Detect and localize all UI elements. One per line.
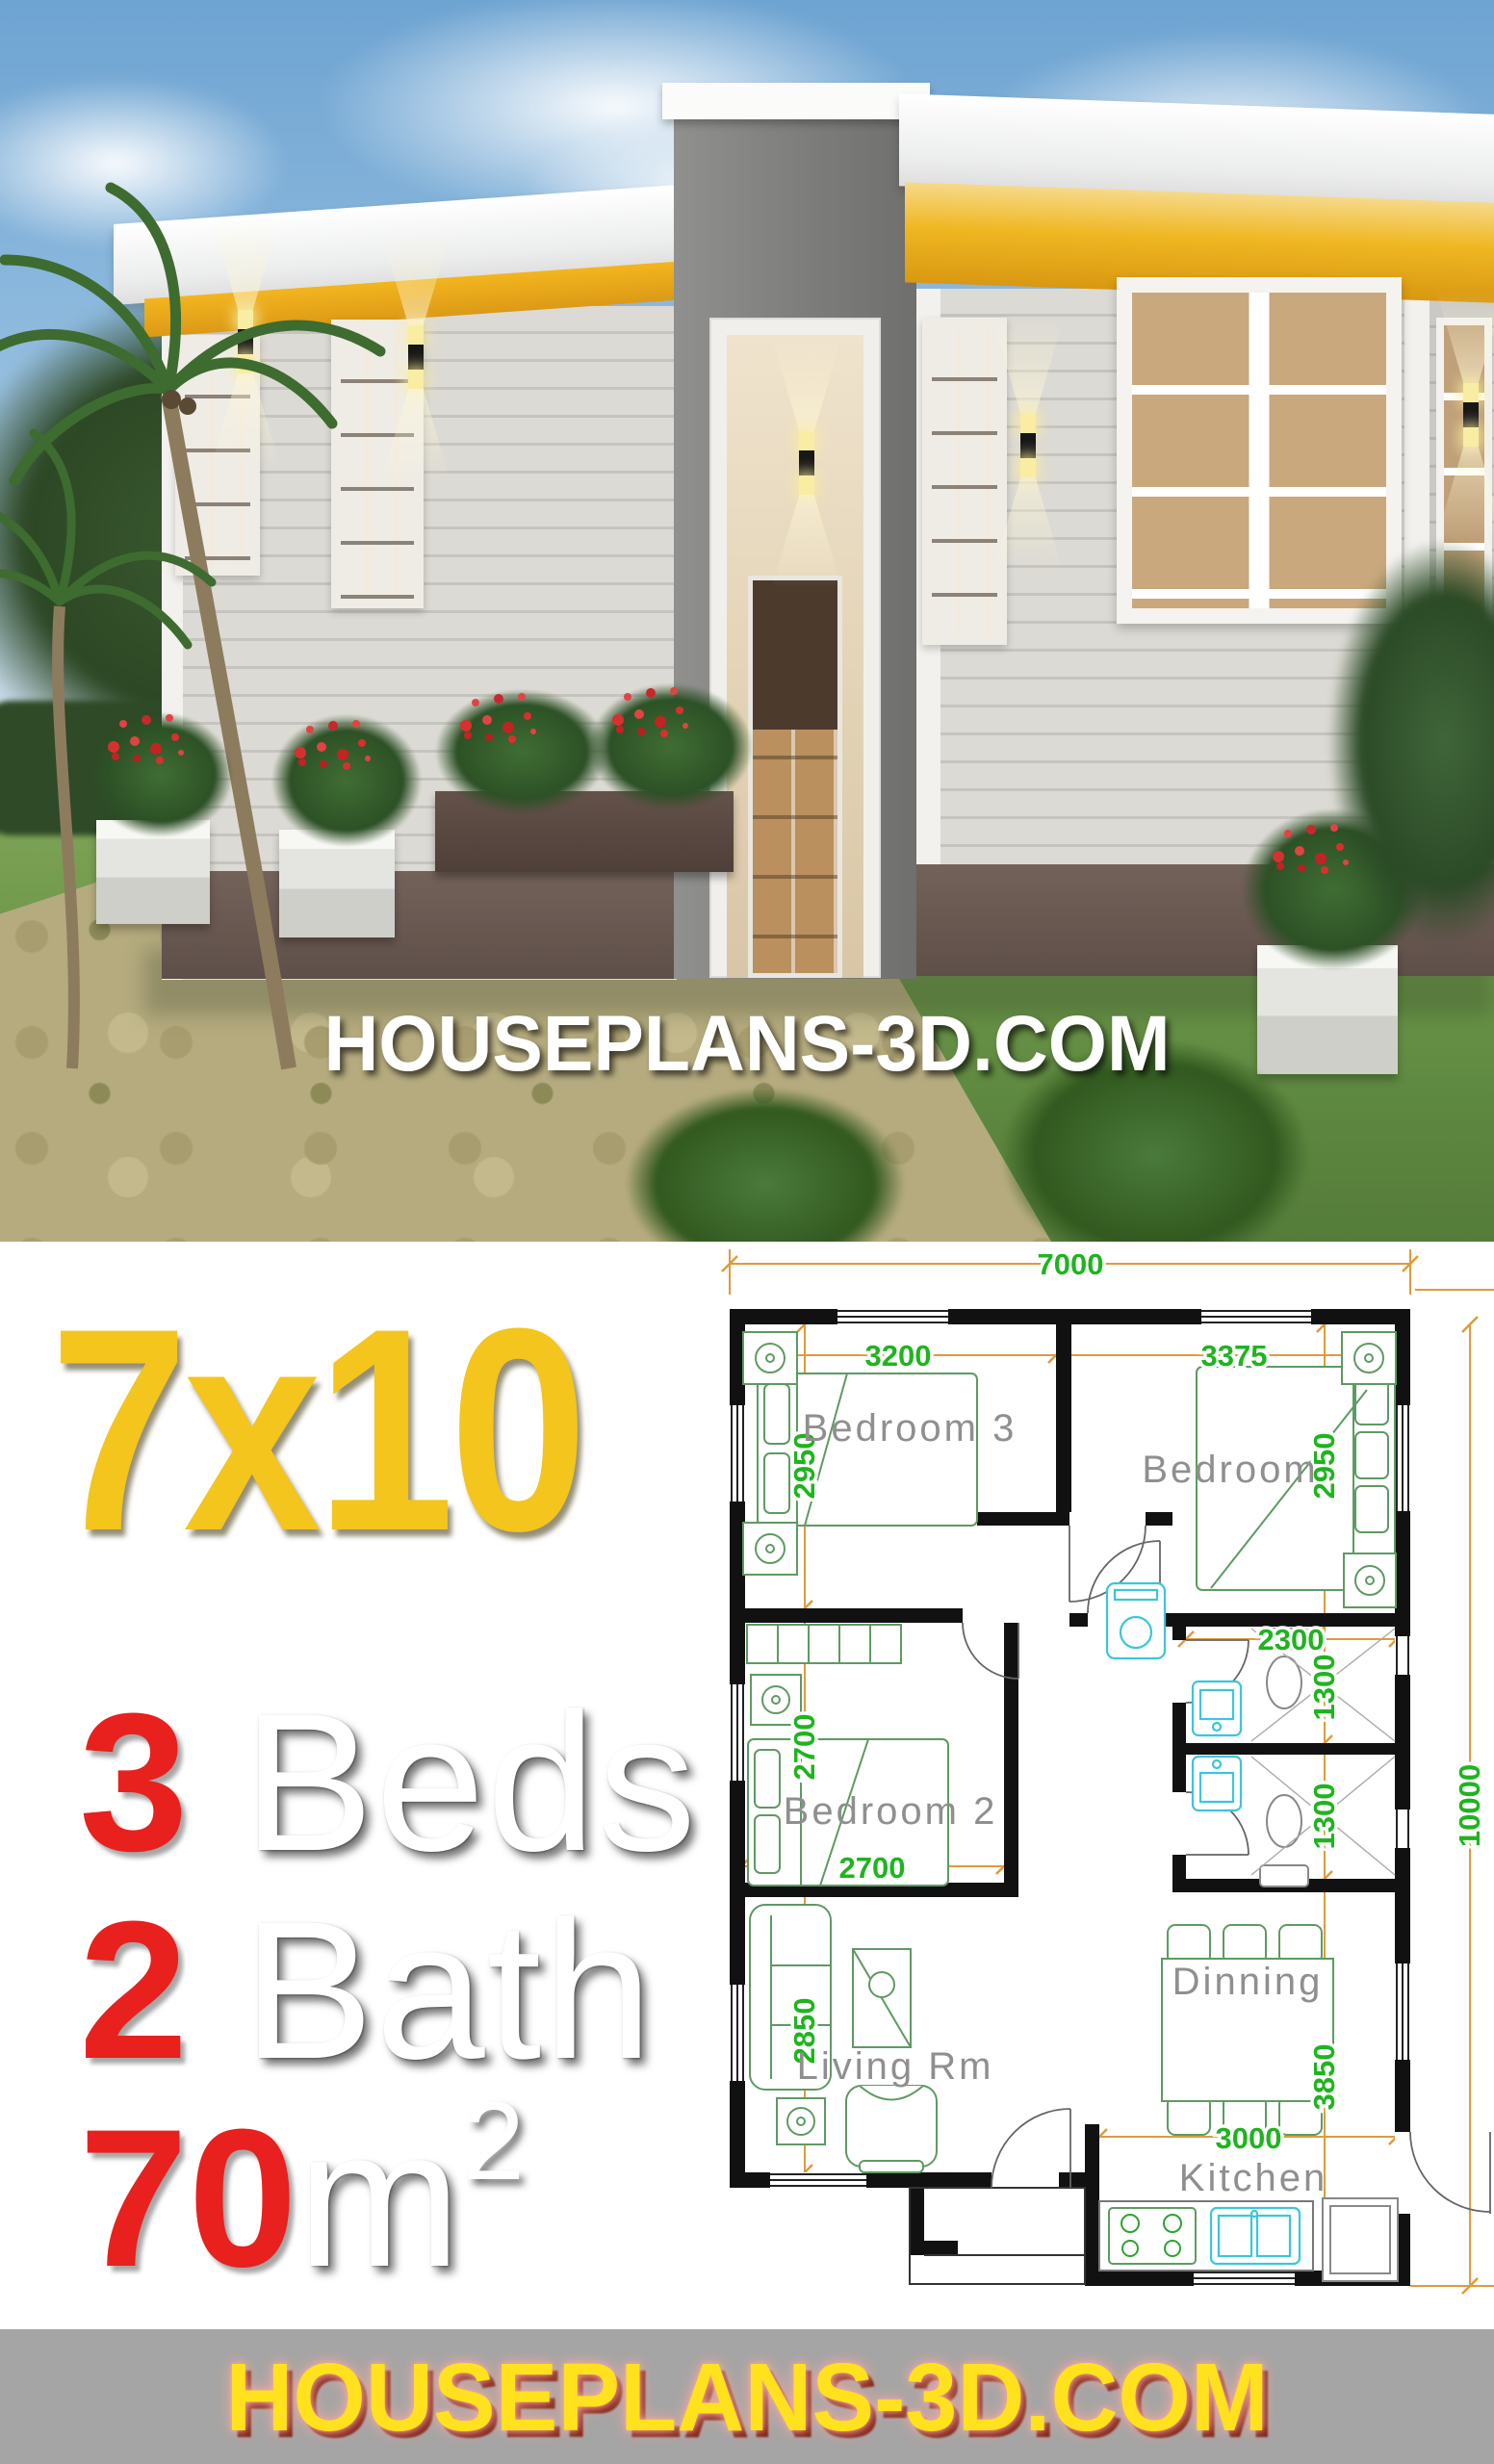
beds-count: 3 — [79, 1673, 188, 1892]
plot-size-title: 7x10 — [50, 1263, 582, 1596]
entry-step — [910, 2188, 1085, 2284]
wall-sconce-light — [799, 431, 814, 495]
area-superscript: 2 — [463, 2080, 525, 2203]
dim-bath-width: 2300 — [1258, 1623, 1325, 1656]
dim-bedroom2-depth: 2700 — [787, 1714, 821, 1781]
label-bedroom2: Bedroom 2 — [784, 1790, 998, 1833]
dim-bedroom-width: 3375 — [1201, 1339, 1268, 1373]
side-door — [922, 318, 1007, 645]
bath-label: Bath — [243, 1881, 655, 2100]
dim-dining-depth: 3850 — [1307, 2044, 1341, 2111]
wall-sconce-light — [1020, 414, 1036, 477]
rose-bush — [435, 689, 608, 814]
rose-blooms — [1273, 851, 1284, 862]
door-leaf — [932, 327, 997, 635]
label-living: Living Rm — [797, 2045, 994, 2088]
dim-right-total: 10000 — [1453, 1764, 1486, 1847]
beds-label: Beds — [243, 1673, 698, 1892]
spec-area: 70m2 — [79, 2087, 525, 2297]
rose-bush — [89, 712, 233, 837]
entry-tower-cap — [662, 83, 930, 119]
rose-bush — [271, 714, 422, 847]
front-door — [748, 576, 842, 978]
dim-kitchen-width: 3000 — [1216, 2121, 1282, 2155]
label-bedroom: Bedroom — [1142, 1449, 1318, 1491]
dim-bath1-depth: 1300 — [1307, 1655, 1341, 1721]
wall-sconce-light — [1463, 383, 1479, 447]
bath-count: 2 — [79, 1881, 188, 2100]
spec-beds: 3 Beds — [79, 1684, 698, 1881]
picture-window — [1117, 277, 1402, 624]
label-kitchen: Kitchen — [1179, 2157, 1327, 2199]
window-panes — [1132, 293, 1386, 608]
label-dining: Dinning — [1172, 1961, 1324, 2003]
website-url: HOUSEPLANS-3D.COM — [22, 2343, 1471, 2453]
spec-bath: 2 Bath — [79, 1892, 655, 2089]
dim-bedroom2-width: 2700 — [839, 1851, 906, 1885]
dim-bath2-depth: 1300 — [1307, 1784, 1341, 1850]
rose-blooms — [460, 720, 472, 731]
photo-watermark: HOUSEPLANS-3D.COM — [30, 999, 1464, 1090]
rose-blooms — [612, 714, 624, 726]
area-unit: m — [297, 2089, 463, 2308]
dim-bedroom3-width: 3200 — [865, 1339, 932, 1373]
rose-blooms — [295, 747, 306, 758]
footer-banner: HOUSEPLANS-3D.COM — [0, 2329, 1494, 2464]
house-plan-poster: HOUSEPLANS-3D.COM 7x10 3 Beds 2 Bath 70m… — [0, 0, 1494, 2464]
label-bedroom3: Bedroom 3 — [803, 1407, 1017, 1450]
hero-photo: HOUSEPLANS-3D.COM — [0, 0, 1494, 1242]
floor-plan: 7000 3200 3375 2950 2950 2300 1300 1300 … — [693, 1242, 1494, 2329]
rose-blooms — [108, 741, 119, 753]
rose-bush — [589, 683, 753, 810]
dim-top-total: 7000 — [1038, 1247, 1104, 1281]
area-value: 70 — [79, 2089, 297, 2308]
palm-trees — [0, 106, 433, 1088]
